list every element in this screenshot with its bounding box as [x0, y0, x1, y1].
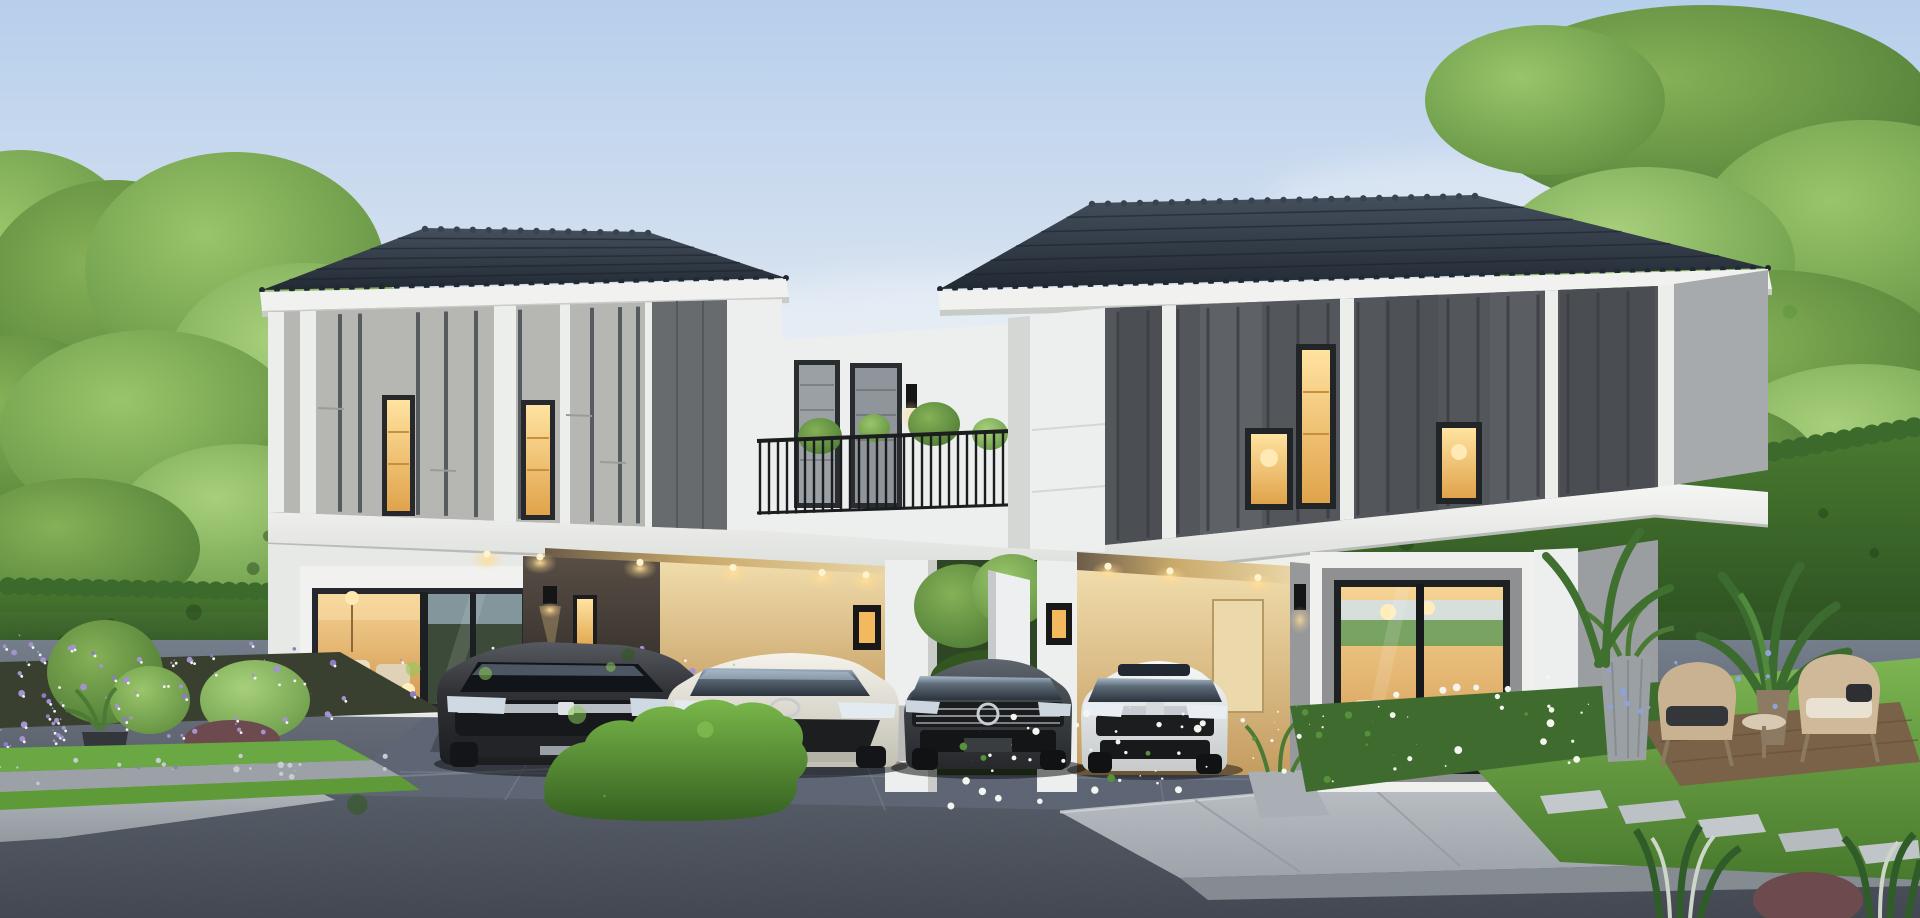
- ridge-cap: [1105, 200, 1111, 206]
- hedge-leaf: [603, 795, 605, 797]
- pilaster: [1162, 305, 1176, 539]
- flower: [330, 717, 333, 720]
- flower: [167, 734, 171, 738]
- flower: [10, 745, 12, 747]
- ridge-cap: [470, 227, 476, 233]
- headlight: [905, 700, 940, 714]
- ridge-cap: [1472, 193, 1478, 199]
- ridge-cap: [1201, 198, 1207, 204]
- ridge-cap: [501, 227, 507, 233]
- flower: [1605, 690, 1607, 692]
- flower: [414, 696, 417, 699]
- flower: [62, 704, 65, 707]
- gravel-stone: [383, 754, 388, 759]
- hedge-leaf: [186, 604, 202, 620]
- flower: [99, 664, 103, 668]
- flower: [20, 675, 23, 678]
- flower: [1316, 732, 1323, 739]
- flower: [683, 657, 684, 658]
- flower: [1270, 739, 1273, 742]
- flower: [1032, 728, 1039, 735]
- gravel-stone: [298, 763, 301, 766]
- shrub: [110, 666, 190, 734]
- flower: [51, 722, 55, 726]
- flower: [1624, 701, 1630, 707]
- flower: [5, 648, 8, 651]
- hedge-leaf: [697, 721, 713, 737]
- flower: [235, 723, 237, 725]
- flower: [1500, 706, 1504, 710]
- flower: [264, 659, 265, 660]
- flower: [1765, 679, 1766, 680]
- panel-joint: [566, 415, 592, 416]
- downlight: [1104, 563, 1111, 570]
- downlight: [636, 559, 643, 566]
- flower: [344, 700, 347, 703]
- column-curve-shade: [1008, 316, 1030, 549]
- flower: [234, 717, 237, 720]
- flower: [1439, 687, 1446, 694]
- flower: [1277, 711, 1279, 713]
- flower: [1540, 738, 1547, 745]
- flower: [400, 659, 402, 661]
- ridge-cap: [1360, 195, 1366, 201]
- hedge-leaf: [247, 562, 260, 575]
- flower: [689, 670, 690, 671]
- flower: [277, 681, 279, 683]
- flower: [182, 737, 185, 740]
- flower: [252, 674, 255, 677]
- upper-window-lit: [1245, 428, 1293, 510]
- flower: [210, 654, 213, 657]
- flower: [71, 650, 74, 653]
- flower: [1528, 682, 1529, 683]
- flower: [1028, 758, 1031, 761]
- flower: [1252, 757, 1254, 759]
- flower: [684, 659, 687, 662]
- flower: [163, 685, 166, 688]
- flower: [979, 788, 986, 795]
- headlight: [447, 696, 506, 714]
- flower: [25, 726, 28, 729]
- flower: [64, 729, 67, 732]
- ridge-cap: [486, 227, 492, 233]
- flower: [62, 726, 66, 730]
- flower: [1161, 777, 1163, 779]
- flower: [1676, 664, 1677, 665]
- flower: [1620, 688, 1625, 693]
- flower: [1473, 684, 1479, 690]
- flower: [249, 642, 253, 646]
- flower: [1393, 767, 1396, 770]
- ridge-cap: [565, 228, 571, 234]
- ridge-cap: [1440, 193, 1446, 199]
- gravel-stone: [287, 763, 292, 768]
- panel-joint: [430, 470, 456, 471]
- flower: [167, 685, 170, 688]
- ridge-cap: [454, 226, 460, 232]
- ridge-cap: [1089, 201, 1095, 207]
- flower: [995, 795, 1002, 802]
- ridge-cap: [1137, 200, 1143, 206]
- flower: [74, 649, 77, 652]
- flower: [19, 635, 21, 637]
- wheel: [856, 746, 886, 768]
- flower: [185, 698, 188, 701]
- flower: [1115, 730, 1118, 733]
- flower: [129, 716, 132, 719]
- pilaster: [560, 304, 570, 523]
- flower: [1116, 740, 1121, 745]
- flower: [311, 694, 312, 695]
- flower: [1061, 759, 1065, 763]
- flower: [1322, 715, 1324, 717]
- flower: [56, 733, 60, 737]
- panel-shade: [1385, 295, 1438, 516]
- gravel-stone: [117, 763, 121, 767]
- flower: [1546, 675, 1550, 679]
- flower: [1365, 731, 1371, 737]
- wheel: [1196, 754, 1222, 774]
- flower: [1011, 745, 1012, 746]
- gravel-stone: [172, 769, 173, 770]
- flower: [1736, 676, 1742, 682]
- flower: [1607, 669, 1611, 673]
- flower: [126, 728, 129, 731]
- flower: [170, 662, 172, 664]
- ridge-cap: [1216, 198, 1222, 204]
- lamp-glow: [345, 591, 359, 605]
- ridge-cap: [1280, 197, 1286, 203]
- panel-shade: [1490, 291, 1538, 505]
- flower: [991, 769, 994, 772]
- flower: [1027, 727, 1030, 730]
- ridge-cap: [1121, 200, 1127, 206]
- architectural-rendering: [0, 0, 1920, 918]
- ridge-cap: [597, 229, 603, 235]
- flower: [1278, 729, 1280, 731]
- gravel-stone: [156, 758, 161, 763]
- gravel-stone: [249, 767, 252, 770]
- hedge-leaf: [1818, 508, 1828, 518]
- flower: [236, 720, 239, 723]
- flower: [1324, 776, 1331, 783]
- flower: [214, 672, 215, 673]
- right-side-face: [1674, 270, 1768, 485]
- flower: [136, 694, 139, 697]
- flower: [303, 683, 306, 686]
- sunroof: [1118, 664, 1190, 676]
- left-dark-panel: [652, 300, 727, 530]
- downlight: [483, 550, 490, 557]
- flower: [192, 729, 197, 734]
- flower: [1638, 708, 1643, 713]
- flower: [112, 676, 116, 680]
- flower: [1407, 716, 1408, 717]
- gravel-stone: [279, 772, 283, 776]
- upper-window-lit: [1436, 422, 1482, 504]
- gravel-stone: [238, 754, 242, 758]
- upper-window-lit: [382, 395, 415, 516]
- flower: [492, 647, 495, 650]
- gravel-stone: [294, 770, 295, 771]
- wheel: [1088, 752, 1112, 773]
- flower: [1118, 779, 1121, 782]
- tree-canopy: [1425, 25, 1665, 175]
- flower: [1194, 725, 1202, 733]
- flower: [1252, 737, 1256, 741]
- flower: [947, 802, 954, 809]
- gravel-stone: [32, 778, 33, 779]
- flower: [1390, 712, 1396, 718]
- flower: [1177, 751, 1181, 755]
- flower: [1453, 684, 1461, 692]
- flower: [3, 645, 7, 649]
- flower: [179, 684, 183, 688]
- flower: [0, 729, 2, 731]
- windshield-reflection: [472, 664, 644, 676]
- flower: [60, 735, 63, 738]
- ridge-cap: [533, 228, 539, 234]
- flower: [42, 693, 47, 698]
- flower: [1407, 756, 1412, 761]
- flower: [1547, 705, 1550, 708]
- flower: [63, 739, 66, 742]
- seat-cushion: [1666, 706, 1728, 726]
- flower: [325, 711, 331, 717]
- flower: [988, 753, 991, 756]
- flower: [1281, 768, 1286, 773]
- pendant-lamp: [1451, 444, 1467, 460]
- hedge-leaf: [188, 565, 189, 566]
- flower: [1393, 692, 1399, 698]
- flower: [48, 718, 51, 721]
- flower: [115, 704, 119, 708]
- flower: [1765, 650, 1771, 656]
- hedge-leaf: [406, 661, 421, 676]
- flower: [1074, 723, 1079, 728]
- flower: [1302, 709, 1309, 716]
- gravel-stone: [100, 766, 102, 768]
- flower: [401, 661, 404, 664]
- flower: [46, 714, 50, 718]
- hedge-leaf: [568, 705, 586, 723]
- ridge-cap: [549, 228, 555, 234]
- panel-joint: [600, 462, 626, 463]
- flower: [302, 680, 303, 681]
- flower: [18, 671, 22, 675]
- flower: [1083, 710, 1090, 717]
- flower: [1580, 711, 1582, 713]
- pilaster: [1340, 298, 1354, 520]
- flower: [140, 661, 143, 664]
- flower: [1365, 743, 1368, 746]
- panel-joint: [318, 408, 344, 409]
- flower: [190, 661, 193, 664]
- corner-pilaster: [268, 312, 284, 512]
- ridge-cap: [613, 229, 619, 235]
- pilaster: [494, 306, 516, 522]
- flower: [1495, 694, 1500, 699]
- wheel: [912, 748, 938, 770]
- flower: [11, 650, 17, 656]
- flower: [1240, 718, 1245, 723]
- flower: [54, 732, 57, 735]
- flower: [94, 655, 97, 658]
- downlight: [536, 553, 543, 560]
- flower: [1588, 704, 1589, 705]
- flower: [172, 664, 175, 667]
- upper-window-lit: [1296, 344, 1336, 509]
- flower: [342, 696, 347, 701]
- flower: [1200, 720, 1206, 726]
- flower: [1416, 744, 1417, 745]
- flower: [1012, 756, 1017, 761]
- ridge-cap: [1248, 197, 1254, 203]
- flower: [1345, 711, 1352, 718]
- flower: [1393, 755, 1394, 756]
- pendant-lamp: [1260, 449, 1278, 467]
- flower: [44, 662, 47, 665]
- flower: [118, 707, 121, 710]
- windshield: [910, 676, 1062, 700]
- flower: [334, 665, 337, 668]
- ridge-cap: [1376, 195, 1382, 201]
- flower: [37, 651, 39, 653]
- flower: [278, 683, 281, 686]
- ridge-cap: [1344, 195, 1350, 201]
- flower: [215, 674, 218, 677]
- flower: [1181, 725, 1184, 728]
- flower: [125, 721, 128, 724]
- flower: [1274, 722, 1275, 723]
- flower: [60, 718, 62, 720]
- hedge-leaf: [1783, 305, 1797, 319]
- flower: [1124, 751, 1127, 754]
- hedge-leaf: [733, 664, 735, 666]
- flower: [1182, 713, 1185, 716]
- wheel: [450, 742, 478, 767]
- flower: [57, 722, 60, 725]
- door-mullion: [420, 592, 428, 706]
- panel-shade: [1120, 306, 1162, 544]
- ridge-cap: [1392, 194, 1398, 200]
- flower: [1037, 798, 1043, 804]
- downlight: [729, 564, 736, 571]
- flower: [293, 679, 296, 682]
- flower: [1129, 707, 1130, 708]
- ridge-cap: [1424, 194, 1430, 200]
- flower: [1549, 707, 1555, 713]
- flower: [22, 695, 25, 698]
- ridge-cap: [1408, 194, 1414, 200]
- hedge-leaf: [606, 662, 616, 672]
- flower: [1454, 746, 1462, 754]
- flower: [53, 710, 56, 713]
- flower: [286, 721, 289, 724]
- ridge-cap: [517, 228, 523, 234]
- downlight: [818, 569, 825, 576]
- flower: [1175, 786, 1182, 793]
- flower: [1547, 719, 1555, 727]
- flower: [60, 702, 62, 704]
- flower: [80, 684, 87, 691]
- flower: [1206, 766, 1208, 768]
- flower: [27, 663, 30, 666]
- ridge-cap: [581, 229, 587, 235]
- gravel-stone: [289, 774, 295, 780]
- lit-wall-plaque: [1046, 603, 1072, 645]
- flower: [1378, 706, 1380, 708]
- flower: [193, 662, 196, 665]
- flower: [1146, 751, 1151, 756]
- flower: [114, 679, 117, 682]
- flower: [180, 734, 183, 737]
- ridge-cap: [629, 230, 635, 236]
- ridge-cap: [1169, 199, 1175, 205]
- panel-shade: [1560, 286, 1655, 497]
- ridge-cap: [1185, 199, 1191, 205]
- pilaster: [1545, 290, 1558, 499]
- flower: [173, 660, 174, 661]
- flower: [1156, 782, 1159, 785]
- flower: [91, 651, 95, 655]
- flower: [49, 703, 52, 706]
- flower: [252, 645, 255, 648]
- flower: [1297, 706, 1298, 707]
- gravel-stone: [137, 765, 141, 769]
- gravel-stone: [73, 758, 78, 763]
- flower: [981, 755, 987, 761]
- ridge-cap: [422, 226, 428, 232]
- flower: [4, 742, 9, 747]
- flower: [1089, 748, 1092, 751]
- gravel-stone: [278, 762, 284, 768]
- gravel-stone: [162, 762, 166, 766]
- downlight: [1166, 567, 1173, 574]
- flower: [237, 728, 241, 732]
- gravel-stone: [16, 766, 18, 768]
- flower: [26, 661, 28, 663]
- flower: [1107, 774, 1115, 782]
- flower: [1766, 674, 1770, 678]
- flower: [254, 677, 257, 680]
- windshield: [1088, 678, 1222, 702]
- flower: [1608, 704, 1613, 709]
- flower: [1373, 721, 1374, 722]
- flower: [39, 654, 42, 657]
- flower: [1321, 726, 1323, 728]
- upper-window-lit: [521, 400, 555, 520]
- gravel-stone: [383, 767, 387, 771]
- flower: [212, 657, 215, 660]
- flower: [1156, 722, 1161, 727]
- flower: [1332, 780, 1334, 782]
- gravel-stone: [174, 765, 178, 769]
- flower: [261, 730, 266, 735]
- ridge-cap: [1328, 196, 1334, 202]
- flower: [1011, 714, 1017, 720]
- flower: [161, 683, 163, 685]
- flower: [1505, 686, 1511, 692]
- flower: [58, 686, 61, 689]
- headlight: [838, 702, 896, 718]
- flower: [1297, 734, 1302, 739]
- flower: [1647, 706, 1650, 709]
- gravel-stone: [36, 782, 39, 785]
- hedge-leaf: [1869, 548, 1879, 558]
- lit-wall-plaque: [853, 605, 881, 650]
